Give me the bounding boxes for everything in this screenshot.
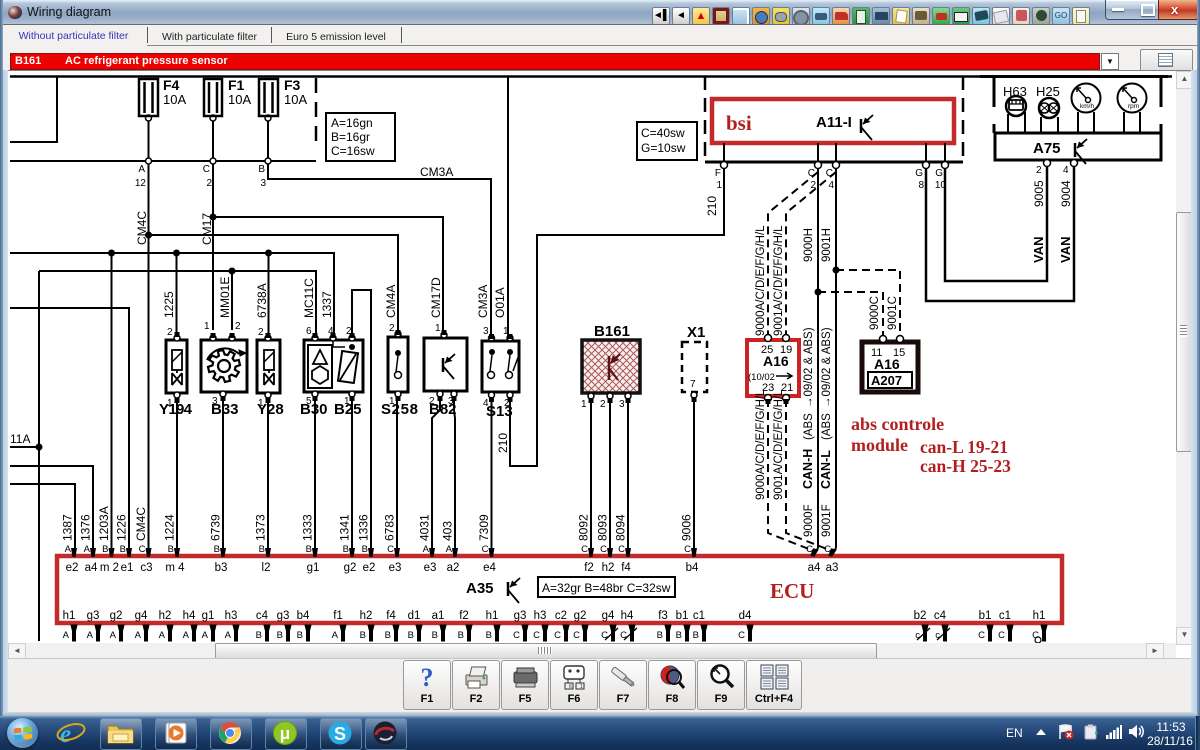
svg-text:7309: 7309 <box>477 514 491 541</box>
svg-text:10A: 10A <box>284 92 307 107</box>
svg-text:CM17: CM17 <box>200 213 214 245</box>
svg-text:A: A <box>135 630 142 641</box>
svg-text:f1: f1 <box>333 610 343 622</box>
svg-text:can-L 19-21: can-L 19-21 <box>920 437 1008 457</box>
svg-text:G=10sw: G=10sw <box>641 141 686 155</box>
svg-text:b3: b3 <box>215 562 228 574</box>
svg-text:210: 210 <box>705 196 719 216</box>
svg-text:→09/02 & ABS): →09/02 & ABS) <box>821 327 833 408</box>
svg-text:B: B <box>458 630 464 641</box>
svg-text:C: C <box>806 544 813 555</box>
svg-text:A: A <box>423 544 430 555</box>
svg-text:A: A <box>332 630 339 641</box>
svg-text:B: B <box>693 630 699 641</box>
svg-text:C: C <box>684 544 691 555</box>
svg-text:12: 12 <box>135 178 147 189</box>
svg-text:1: 1 <box>204 321 210 332</box>
svg-text:C: C <box>601 630 608 641</box>
svg-text:g2: g2 <box>110 610 123 622</box>
svg-text:ECU: ECU <box>770 579 814 603</box>
svg-text:2: 2 <box>206 178 212 189</box>
svg-text:B: B <box>168 544 174 555</box>
svg-text:rpm: rpm <box>1128 103 1139 110</box>
svg-text:B: B <box>277 630 283 641</box>
svg-text:2: 2 <box>600 399 606 410</box>
svg-text:H63: H63 <box>1003 84 1027 99</box>
svg-text:9000A/C/D/E/F/G/H/L: 9000A/C/D/E/F/G/H/L <box>755 225 767 336</box>
svg-text:1373: 1373 <box>254 514 268 541</box>
svg-text:6738A: 6738A <box>255 283 269 318</box>
svg-text:8092: 8092 <box>577 514 591 541</box>
svg-text:A: A <box>138 164 145 175</box>
svg-text:9001H: 9001H <box>821 228 833 262</box>
svg-text:1376: 1376 <box>79 514 93 541</box>
svg-text:10A: 10A <box>228 92 251 107</box>
svg-text:g4: g4 <box>135 610 148 622</box>
svg-text:2: 2 <box>258 327 264 338</box>
svg-text:C: C <box>139 544 146 555</box>
svg-text:1: 1 <box>716 180 722 191</box>
svg-text:6: 6 <box>306 326 312 337</box>
svg-text:g1: g1 <box>202 610 215 622</box>
svg-text:a3: a3 <box>826 562 839 574</box>
svg-text:4: 4 <box>828 180 834 191</box>
svg-text:d4: d4 <box>739 610 752 622</box>
svg-text:c1: c1 <box>999 610 1011 622</box>
svg-text:B: B <box>676 630 682 641</box>
svg-text:1224: 1224 <box>163 514 177 541</box>
svg-text:9001A/C/D/E/F/G/H/L: 9001A/C/D/E/F/G/H/L <box>773 225 785 336</box>
svg-text:1341: 1341 <box>338 514 352 541</box>
svg-text:6783: 6783 <box>383 514 397 541</box>
svg-text:h2: h2 <box>159 610 172 622</box>
svg-text:C: C <box>581 544 588 555</box>
svg-text:F: F <box>715 168 721 179</box>
svg-text:CM4A: CM4A <box>384 285 398 318</box>
svg-text:O01A: O01A <box>493 287 507 318</box>
svg-text:e2: e2 <box>66 562 79 574</box>
svg-text:C: C <box>387 544 394 555</box>
svg-text:B33: B33 <box>211 401 239 418</box>
svg-text:8094: 8094 <box>614 514 628 541</box>
svg-text:B: B <box>306 544 312 555</box>
svg-text:f4: f4 <box>386 610 396 622</box>
svg-text:can-H 25-23: can-H 25-23 <box>920 456 1011 476</box>
svg-text:Y194: Y194 <box>159 401 193 418</box>
svg-text:h1: h1 <box>1033 610 1046 622</box>
svg-text:2: 2 <box>235 321 241 332</box>
svg-text:1: 1 <box>435 323 441 334</box>
svg-text:h3: h3 <box>534 610 547 622</box>
svg-text:A: A <box>183 630 190 641</box>
svg-text:a1: a1 <box>432 610 445 622</box>
svg-text:f3: f3 <box>658 610 668 622</box>
svg-text:A16: A16 <box>874 356 900 372</box>
svg-text:11A: 11A <box>10 432 30 446</box>
svg-text:F1: F1 <box>228 77 245 93</box>
svg-text:A=16gn: A=16gn <box>331 116 373 130</box>
svg-text:(ABS: (ABS <box>803 413 815 440</box>
svg-text:e1: e1 <box>121 562 134 574</box>
svg-text:C: C <box>600 544 607 555</box>
svg-text:B161: B161 <box>594 323 630 340</box>
svg-text:2: 2 <box>1036 165 1042 176</box>
svg-text:A35: A35 <box>466 580 494 597</box>
svg-text:MC11C: MC11C <box>302 278 316 318</box>
svg-text:B: B <box>259 544 265 555</box>
svg-text:C: C <box>998 630 1005 641</box>
svg-text:b2: b2 <box>914 610 927 622</box>
svg-text:6: 6 <box>569 684 572 690</box>
svg-text:A: A <box>87 630 94 641</box>
svg-text:h2: h2 <box>602 562 615 574</box>
svg-text:C: C <box>738 630 745 641</box>
svg-text:CM3A: CM3A <box>420 165 453 179</box>
svg-text:h4: h4 <box>183 610 196 622</box>
svg-text:f2: f2 <box>459 610 469 622</box>
svg-text:B30: B30 <box>300 401 328 418</box>
svg-text:F4: F4 <box>163 77 180 93</box>
svg-text:1226: 1226 <box>115 514 129 541</box>
svg-text:a2: a2 <box>447 562 460 574</box>
svg-text:9001F: 9001F <box>821 504 833 537</box>
svg-text:h3: h3 <box>225 610 238 622</box>
svg-text:B: B <box>657 630 663 641</box>
svg-text:B: B <box>360 630 366 641</box>
svg-text:Y28: Y28 <box>257 401 284 418</box>
svg-text:bsi: bsi <box>726 111 752 135</box>
svg-text:g1: g1 <box>307 562 320 574</box>
svg-text:9005: 9005 <box>1032 180 1046 207</box>
svg-text:c3: c3 <box>140 562 152 574</box>
svg-text:1203A: 1203A <box>97 506 111 541</box>
svg-text:403: 403 <box>441 521 455 541</box>
svg-text:10A: 10A <box>163 92 186 107</box>
svg-text:g4: g4 <box>602 610 615 622</box>
svg-text:1333: 1333 <box>301 514 315 541</box>
svg-text:CM4C: CM4C <box>134 507 148 541</box>
svg-text:A=32gr B=48br C=32sw: A=32gr B=48br C=32sw <box>542 581 671 595</box>
svg-text:1225: 1225 <box>162 291 176 318</box>
svg-text:g2: g2 <box>574 610 587 622</box>
svg-text:g3: g3 <box>277 610 290 622</box>
svg-text:c1: c1 <box>693 610 705 622</box>
svg-text:g3: g3 <box>514 610 527 622</box>
svg-text:l2: l2 <box>262 562 271 574</box>
svg-text:4031: 4031 <box>418 514 432 541</box>
svg-text:C: C <box>513 630 520 641</box>
svg-text:C: C <box>1032 630 1039 641</box>
svg-text:A: A <box>446 544 453 555</box>
svg-text:9000A/C/D/E/F/G/H/L: 9000A/C/D/E/F/G/H/L <box>755 389 767 500</box>
svg-text:B: B <box>408 630 414 641</box>
svg-text:8093: 8093 <box>596 514 610 541</box>
svg-text:F3: F3 <box>284 77 301 93</box>
svg-text:μ: μ <box>280 724 290 743</box>
svg-text:c4: c4 <box>934 610 947 622</box>
svg-text:MM01E: MM01E <box>218 277 232 318</box>
svg-text:f4: f4 <box>621 562 631 574</box>
svg-text:9006: 9006 <box>680 514 694 541</box>
svg-text:?: ? <box>421 663 434 692</box>
svg-text:G: G <box>915 168 923 179</box>
svg-text:c4: c4 <box>256 610 269 622</box>
svg-text:A: A <box>63 630 70 641</box>
svg-text:B: B <box>385 630 391 641</box>
svg-text:B: B <box>343 544 349 555</box>
svg-text:A11-I: A11-I <box>816 114 852 131</box>
svg-text:B: B <box>297 630 303 641</box>
svg-text:m 4: m 4 <box>165 562 185 574</box>
svg-text:8: 8 <box>918 180 924 191</box>
svg-text:1336: 1336 <box>357 514 371 541</box>
svg-text:A: A <box>84 544 91 555</box>
svg-text:B: B <box>256 630 262 641</box>
svg-text:module: module <box>851 435 908 455</box>
svg-text:C: C <box>808 168 815 179</box>
svg-text:d1: d1 <box>408 610 421 622</box>
svg-text:b1: b1 <box>979 610 992 622</box>
svg-text:→09/02 & ABS): →09/02 & ABS) <box>803 327 815 408</box>
svg-text:A: A <box>202 630 209 641</box>
svg-text:e2: e2 <box>363 562 376 574</box>
svg-text:h2: h2 <box>360 610 373 622</box>
svg-text:h4: h4 <box>621 610 634 622</box>
svg-text:C: C <box>203 164 210 175</box>
svg-text:3: 3 <box>619 399 625 410</box>
svg-text:9000F: 9000F <box>803 504 815 537</box>
svg-text:a4: a4 <box>808 562 821 574</box>
svg-text:B=16gr: B=16gr <box>331 130 370 144</box>
svg-text:3: 3 <box>483 326 489 337</box>
svg-text:A: A <box>65 544 72 555</box>
svg-text:9001A/C/D/E/F/G/H/L: 9001A/C/D/E/F/G/H/L <box>773 389 785 500</box>
svg-text:C=40sw: C=40sw <box>641 126 685 140</box>
svg-text:4: 4 <box>1063 165 1069 176</box>
svg-text:a4: a4 <box>85 562 98 574</box>
svg-text:h1: h1 <box>486 610 499 622</box>
svg-text:C: C <box>533 630 540 641</box>
svg-text:g3: g3 <box>87 610 100 622</box>
svg-text:CM17D: CM17D <box>429 277 443 318</box>
svg-text:B: B <box>120 544 126 555</box>
svg-text:e3: e3 <box>389 562 402 574</box>
svg-text:H25: H25 <box>1036 84 1060 99</box>
svg-text:G: G <box>935 168 943 179</box>
svg-text:9000H: 9000H <box>803 228 815 262</box>
svg-text:c2: c2 <box>555 610 567 622</box>
svg-text:9001C: 9001C <box>887 296 899 330</box>
svg-text:B25: B25 <box>334 401 362 418</box>
svg-text:C: C <box>620 630 627 641</box>
svg-text:f2: f2 <box>584 562 594 574</box>
svg-text:1387: 1387 <box>61 514 75 541</box>
svg-text:C: C <box>978 630 985 641</box>
svg-text:C: C <box>482 544 489 555</box>
svg-text:b4: b4 <box>686 562 699 574</box>
svg-text:1337: 1337 <box>320 291 334 318</box>
svg-text:B: B <box>214 544 220 555</box>
svg-text:9000C: 9000C <box>869 296 881 330</box>
svg-text:abs controle: abs controle <box>851 414 944 434</box>
svg-text:C: C <box>618 544 625 555</box>
svg-text:B82: B82 <box>429 401 457 418</box>
svg-text:VAN: VAN <box>1031 237 1046 263</box>
svg-text:B: B <box>432 630 438 641</box>
svg-text:1: 1 <box>581 399 587 410</box>
svg-text:S: S <box>334 724 346 744</box>
svg-text:3: 3 <box>260 178 266 189</box>
svg-text:e4: e4 <box>483 562 496 574</box>
svg-text:2: 2 <box>389 323 395 334</box>
svg-text:X1: X1 <box>687 324 705 341</box>
svg-text:S13: S13 <box>486 403 513 420</box>
svg-text:g2: g2 <box>344 562 357 574</box>
svg-text:b4: b4 <box>297 610 310 622</box>
svg-text:C: C <box>824 544 831 555</box>
svg-text:(ABS: (ABS <box>821 413 833 440</box>
svg-text:b1: b1 <box>676 610 689 622</box>
svg-text:B: B <box>258 164 265 175</box>
svg-text:CAN-L: CAN-L <box>819 450 833 489</box>
svg-text:A: A <box>159 630 166 641</box>
svg-text:CM3A: CM3A <box>476 285 490 318</box>
svg-text:A: A <box>110 630 117 641</box>
svg-text:VAN: VAN <box>1058 237 1073 263</box>
svg-text:A75: A75 <box>1033 140 1061 157</box>
svg-text:A207: A207 <box>871 373 902 388</box>
svg-text:B: B <box>102 544 108 555</box>
svg-text:C: C <box>826 168 833 179</box>
svg-text:B: B <box>362 544 368 555</box>
svg-text:A16: A16 <box>763 353 789 369</box>
svg-text:A: A <box>225 630 232 641</box>
svg-text:9004: 9004 <box>1059 180 1073 207</box>
svg-text:CM4C: CM4C <box>135 211 149 245</box>
svg-text:C: C <box>573 630 580 641</box>
svg-text:CAN-H: CAN-H <box>801 449 815 489</box>
svg-text:210: 210 <box>496 433 510 453</box>
svg-text:2: 2 <box>167 327 173 338</box>
svg-text:S258: S258 <box>381 401 418 418</box>
svg-text:1: 1 <box>580 684 583 690</box>
svg-text:C=16sw: C=16sw <box>331 144 375 158</box>
svg-text:c: c <box>915 630 920 641</box>
svg-text:7: 7 <box>690 379 696 390</box>
svg-text:h1: h1 <box>63 610 76 622</box>
svg-text:B: B <box>486 630 492 641</box>
svg-text:e3: e3 <box>424 562 437 574</box>
svg-text:C: C <box>554 630 561 641</box>
svg-text:c: c <box>935 630 940 641</box>
svg-text:m 2: m 2 <box>100 562 119 574</box>
svg-text:km/h: km/h <box>1080 103 1094 110</box>
svg-text:6739: 6739 <box>209 514 223 541</box>
